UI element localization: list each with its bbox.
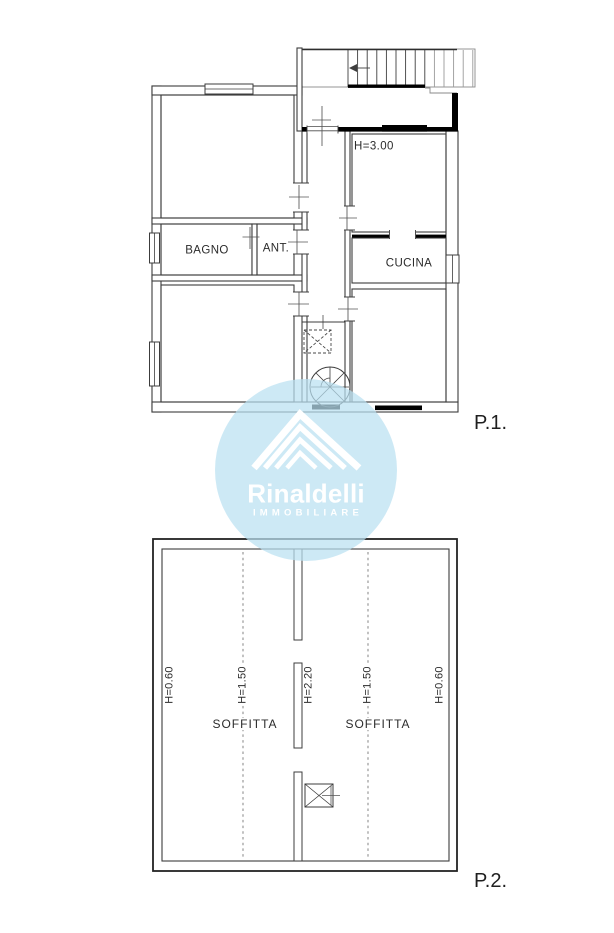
height-label-1: H=0.60 <box>165 666 176 704</box>
p2-slope-dashed-lines <box>243 552 368 857</box>
p1-shaft-dashed-box <box>304 330 331 353</box>
roof-chevron-icon <box>215 379 397 561</box>
landing-window <box>382 125 427 132</box>
caption-p1: P.1. <box>474 413 507 433</box>
room-label-bagno: BAGNO <box>185 245 229 257</box>
p1-door-openings <box>293 183 416 321</box>
height-label-2: H=1.50 <box>238 664 249 706</box>
room-label-cucina: CUCINA <box>386 258 433 270</box>
watermark-brand-tagline: IMMOBILIARE <box>249 508 363 519</box>
watermark-circle: Rinaldelli IMMOBILIARE <box>215 379 397 561</box>
room-label-soffitta-left: SOFFITTA <box>209 718 280 730</box>
caption-p2: P.2. <box>474 871 507 891</box>
room-label-ant: ANT. <box>263 243 290 255</box>
p2-hatch-box-icon <box>305 784 340 807</box>
p2-plan <box>153 539 457 871</box>
floorplan-sheet: BAGNO ANT. CUCINA H=3.00 P.1. SOFFITTA S… <box>0 0 614 933</box>
p1-plan <box>150 48 476 412</box>
height-label-5: H=0.60 <box>435 666 446 704</box>
room-label-soffitta-right: SOFFITTA <box>342 718 413 730</box>
p2-walls <box>153 539 457 871</box>
ceiling-height-label: H=3.00 <box>354 141 394 153</box>
watermark-brand-name: Rinaldelli <box>247 479 365 510</box>
p1-external-staircase-icon <box>302 49 475 93</box>
height-label-3: H=2.20 <box>303 666 314 704</box>
height-label-4: H=1.50 <box>363 664 374 706</box>
stair-direction-arrow-icon <box>349 64 357 72</box>
p1-landing-walls <box>302 93 458 134</box>
